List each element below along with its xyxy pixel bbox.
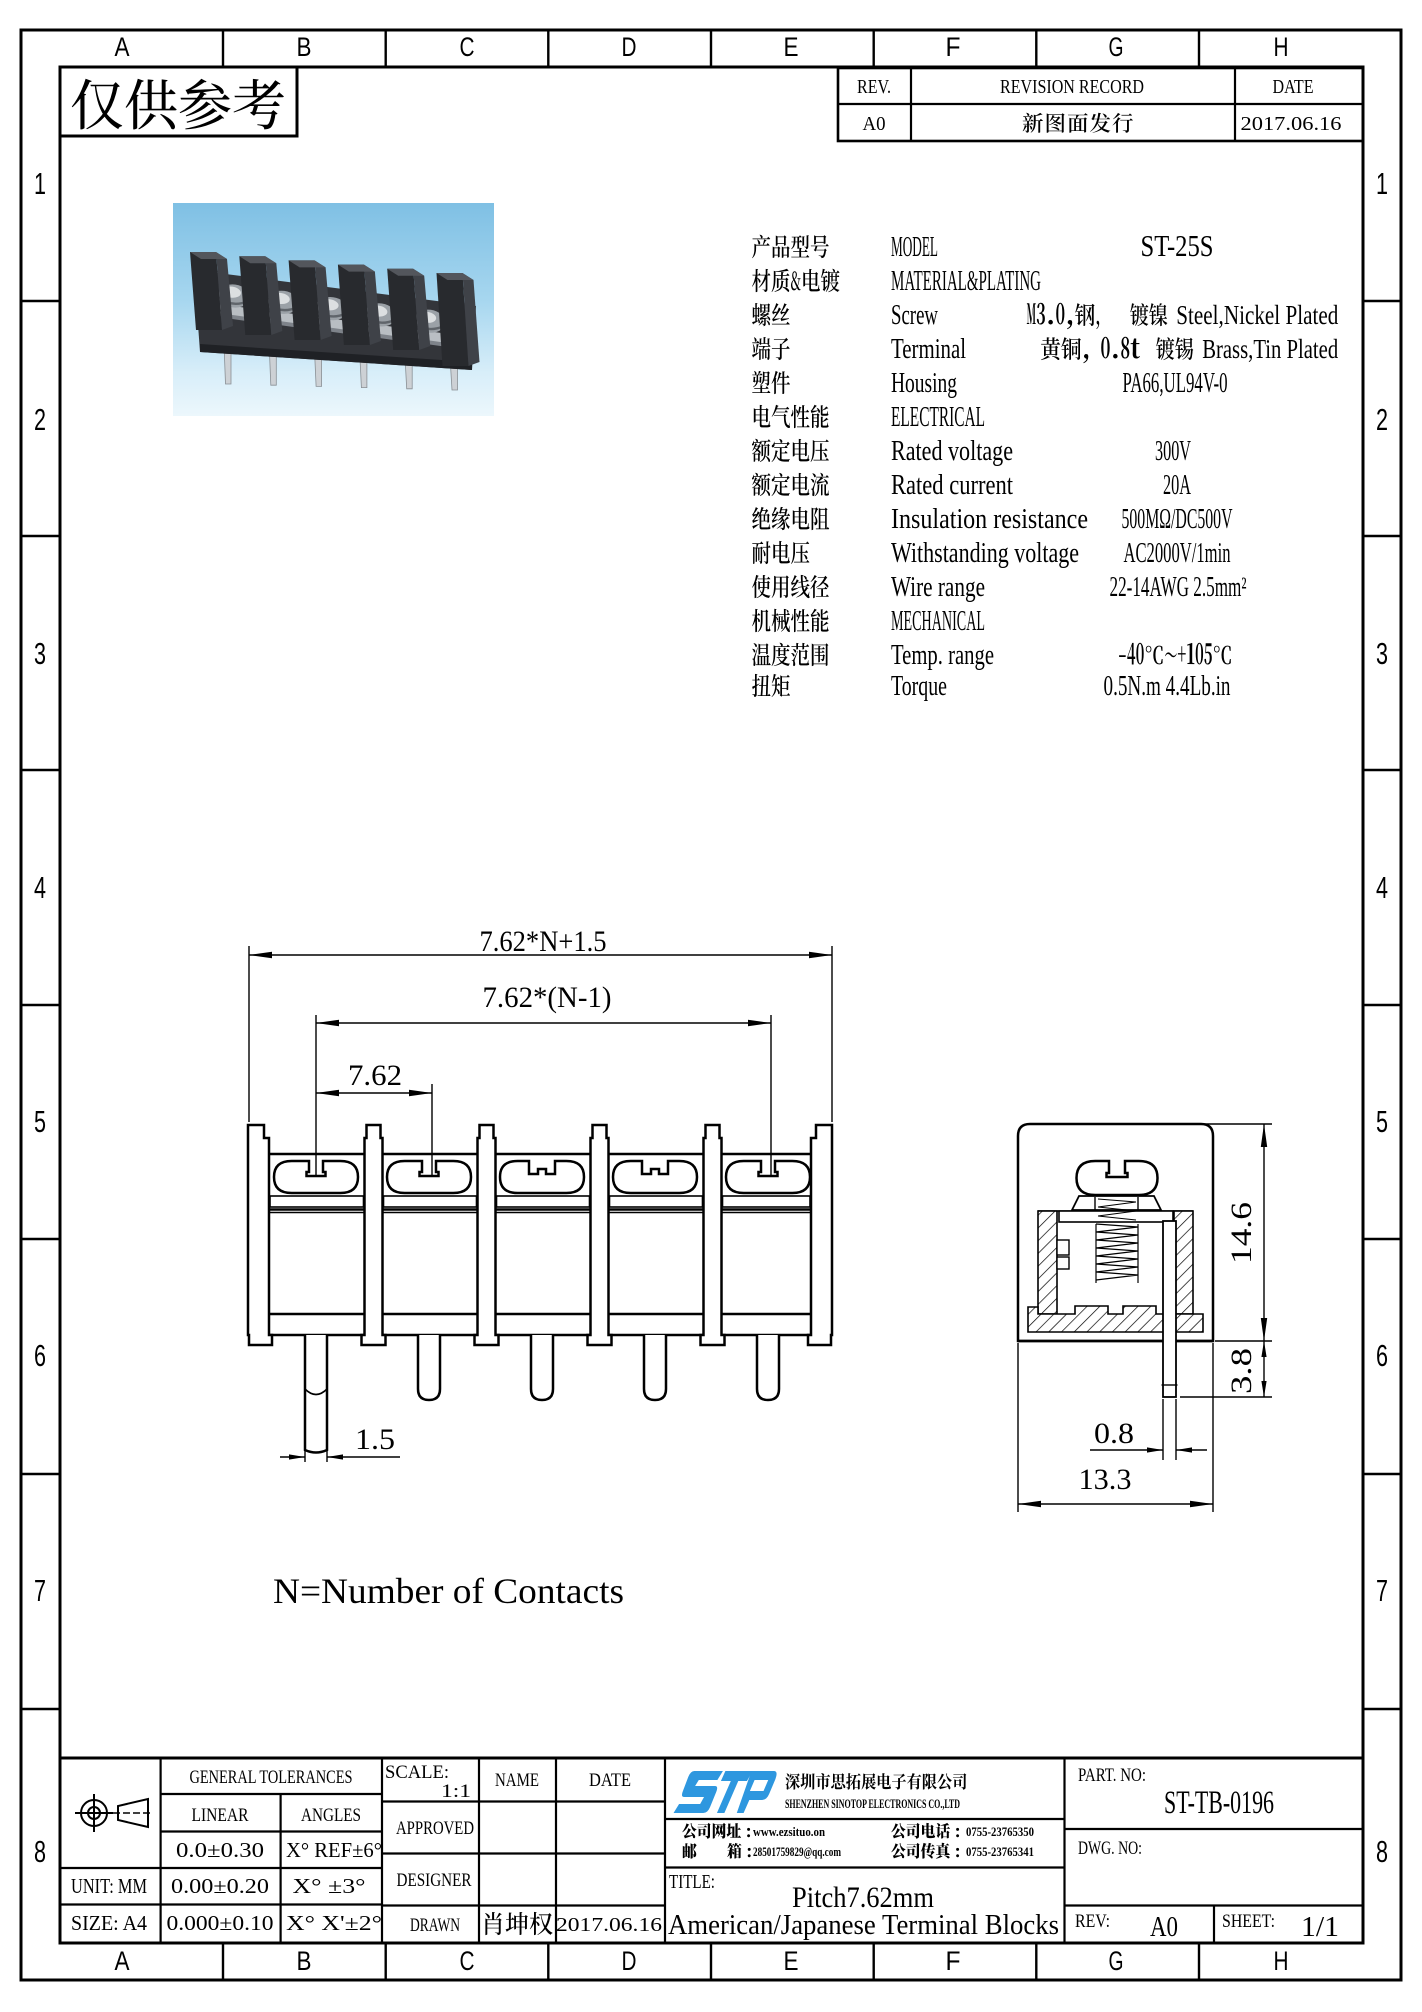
svg-text:0.8: 0.8: [1094, 1417, 1134, 1450]
svg-text:Temp. range: Temp. range: [891, 640, 994, 671]
svg-text:1/1: 1/1: [1301, 1911, 1339, 1943]
svg-text:LINEAR: LINEAR: [192, 1805, 249, 1826]
svg-text:REV:: REV:: [1075, 1911, 1110, 1932]
svg-text:3: 3: [34, 636, 46, 671]
svg-text:AC2000V/1min: AC2000V/1min: [1124, 538, 1231, 569]
svg-text:G: G: [1109, 1946, 1124, 1976]
svg-text:N=Number of Contacts: N=Number of Contacts: [273, 1571, 624, 1611]
svg-text:300V: 300V: [1155, 436, 1191, 467]
svg-text:A: A: [115, 1946, 130, 1976]
svg-text:500MΩ/DC500V: 500MΩ/DC500V: [1122, 504, 1233, 535]
svg-text:GENERAL TOLERANCES: GENERAL TOLERANCES: [190, 1767, 353, 1788]
svg-text:X° ±3°: X° ±3°: [293, 1874, 366, 1898]
svg-text:UNIT: MM: UNIT: MM: [71, 1874, 147, 1898]
svg-text:A0: A0: [863, 113, 886, 135]
svg-text:8: 8: [1376, 1834, 1388, 1869]
svg-text:PART. NO:: PART. NO:: [1078, 1765, 1146, 1786]
svg-text:C: C: [460, 32, 475, 62]
svg-text:F: F: [946, 1946, 961, 1976]
svg-text:2017.06.16: 2017.06.16: [556, 1914, 662, 1936]
svg-text:1: 1: [34, 166, 46, 201]
svg-text:ST-25S: ST-25S: [1141, 228, 1214, 263]
svg-text:7.62*N+1.5: 7.62*N+1.5: [480, 925, 607, 958]
svg-text:REV.: REV.: [857, 76, 891, 98]
svg-text:NAME: NAME: [495, 1770, 539, 1791]
svg-text:20A: 20A: [1163, 470, 1191, 501]
svg-text:2: 2: [34, 402, 46, 437]
svg-text:MECHANICAL: MECHANICAL: [891, 606, 985, 637]
svg-text:0755-23765341: 0755-23765341: [966, 1844, 1034, 1859]
svg-text:7.62*(N-1): 7.62*(N-1): [483, 981, 612, 1014]
svg-text:Withstanding voltage: Withstanding voltage: [891, 538, 1079, 569]
svg-text:DATE: DATE: [589, 1770, 631, 1791]
svg-text:ELECTRICAL: ELECTRICAL: [891, 402, 985, 433]
svg-text:0.000±0.10: 0.000±0.10: [167, 1911, 274, 1935]
svg-text:0755-23765350: 0755-23765350: [966, 1824, 1034, 1839]
svg-text:DATE: DATE: [1273, 76, 1314, 98]
svg-text:A: A: [115, 32, 130, 62]
svg-text:4: 4: [1376, 870, 1388, 905]
svg-text:APPROVED: APPROVED: [396, 1818, 474, 1839]
svg-text:H: H: [1274, 32, 1289, 62]
svg-text:DWG. NO:: DWG. NO:: [1078, 1838, 1142, 1859]
svg-text:Rated voltage: Rated voltage: [891, 436, 1013, 467]
svg-text:14.6: 14.6: [1225, 1202, 1258, 1264]
svg-text:American/Japanese Terminal Blo: American/Japanese Terminal Blocks: [668, 1910, 1059, 1941]
svg-text:2017.06.16: 2017.06.16: [1241, 113, 1342, 135]
svg-text:B: B: [297, 32, 312, 62]
svg-text:G: G: [1109, 32, 1124, 62]
svg-text:3: 3: [1376, 636, 1388, 671]
svg-text:5: 5: [1376, 1104, 1388, 1139]
svg-text:E: E: [784, 1946, 799, 1976]
svg-text:7.62: 7.62: [348, 1059, 402, 1092]
svg-text:SHEET:: SHEET:: [1222, 1911, 1275, 1932]
svg-text:F: F: [946, 32, 961, 62]
svg-text:SIZE: A4: SIZE: A4: [71, 1911, 147, 1935]
svg-text:PA66,UL94V-0: PA66,UL94V-0: [1123, 368, 1228, 399]
svg-text:1.5: 1.5: [355, 1423, 395, 1456]
svg-text:Rated current: Rated current: [891, 470, 1013, 501]
svg-text:D: D: [622, 1946, 637, 1976]
svg-text:B: B: [297, 1946, 312, 1976]
svg-text:D: D: [622, 32, 637, 62]
svg-text:www.ezsituo.on: www.ezsituo.on: [753, 1824, 826, 1839]
svg-text:0.0±0.30: 0.0±0.30: [176, 1838, 264, 1862]
svg-text:H: H: [1274, 1946, 1289, 1976]
svg-text:SCALE:: SCALE:: [385, 1762, 449, 1783]
svg-text:2: 2: [1376, 402, 1388, 437]
svg-text:6: 6: [34, 1338, 46, 1373]
svg-text:0.00±0.20: 0.00±0.20: [171, 1874, 269, 1898]
svg-text:1: 1: [1376, 166, 1388, 201]
svg-text:1:1: 1:1: [441, 1781, 471, 1802]
svg-text:MATERIAL&PLATING: MATERIAL&PLATING: [891, 266, 1041, 297]
svg-text:4: 4: [34, 870, 46, 905]
svg-text:5: 5: [34, 1104, 46, 1139]
svg-text:28501759829@qq.com: 28501759829@qq.com: [753, 1844, 841, 1859]
svg-text:X° REF±6°: X° REF±6°: [286, 1838, 382, 1862]
svg-text:22-14AWG 2.5mm²: 22-14AWG 2.5mm²: [1110, 572, 1247, 603]
svg-text:7: 7: [34, 1573, 46, 1608]
svg-text:DRAWN: DRAWN: [410, 1915, 460, 1936]
svg-text:Housing: Housing: [891, 368, 957, 399]
svg-text:TITLE:: TITLE:: [669, 1871, 715, 1893]
svg-text:0.5N.m 4.4Lb.in: 0.5N.m 4.4Lb.in: [1104, 671, 1231, 702]
svg-text:Screw: Screw: [891, 300, 939, 331]
svg-text:Insulation resistance: Insulation resistance: [891, 504, 1088, 535]
svg-text:Wire range: Wire range: [891, 572, 985, 603]
svg-text:SHENZHEN SINOTOP ELECTRONICS C: SHENZHEN SINOTOP ELECTRONICS CO.,LTD: [785, 1796, 960, 1811]
svg-text:X° X'±2°: X° X'±2°: [286, 1911, 382, 1935]
svg-text:6: 6: [1376, 1338, 1388, 1373]
svg-text:8: 8: [34, 1834, 46, 1869]
svg-text:ANGLES: ANGLES: [301, 1805, 361, 1826]
svg-text:C: C: [460, 1946, 475, 1976]
svg-text:Torque: Torque: [891, 671, 947, 702]
svg-text:7: 7: [1376, 1573, 1388, 1608]
svg-text:REVISION RECORD: REVISION RECORD: [1000, 76, 1144, 98]
svg-text:MODEL: MODEL: [891, 232, 938, 263]
svg-text:A0: A0: [1150, 1911, 1178, 1943]
svg-text:Brass,Tin Plated: Brass,Tin Plated: [1202, 334, 1338, 364]
svg-text:Steel,Nickel Plated: Steel,Nickel Plated: [1176, 300, 1338, 330]
svg-text:3.8: 3.8: [1225, 1348, 1258, 1394]
svg-text:DESIGNER: DESIGNER: [397, 1870, 472, 1891]
svg-text:ST-TB-0196: ST-TB-0196: [1164, 1785, 1274, 1821]
svg-text:13.3: 13.3: [1079, 1463, 1132, 1496]
svg-text:Terminal: Terminal: [891, 334, 966, 365]
svg-text:E: E: [784, 32, 799, 62]
